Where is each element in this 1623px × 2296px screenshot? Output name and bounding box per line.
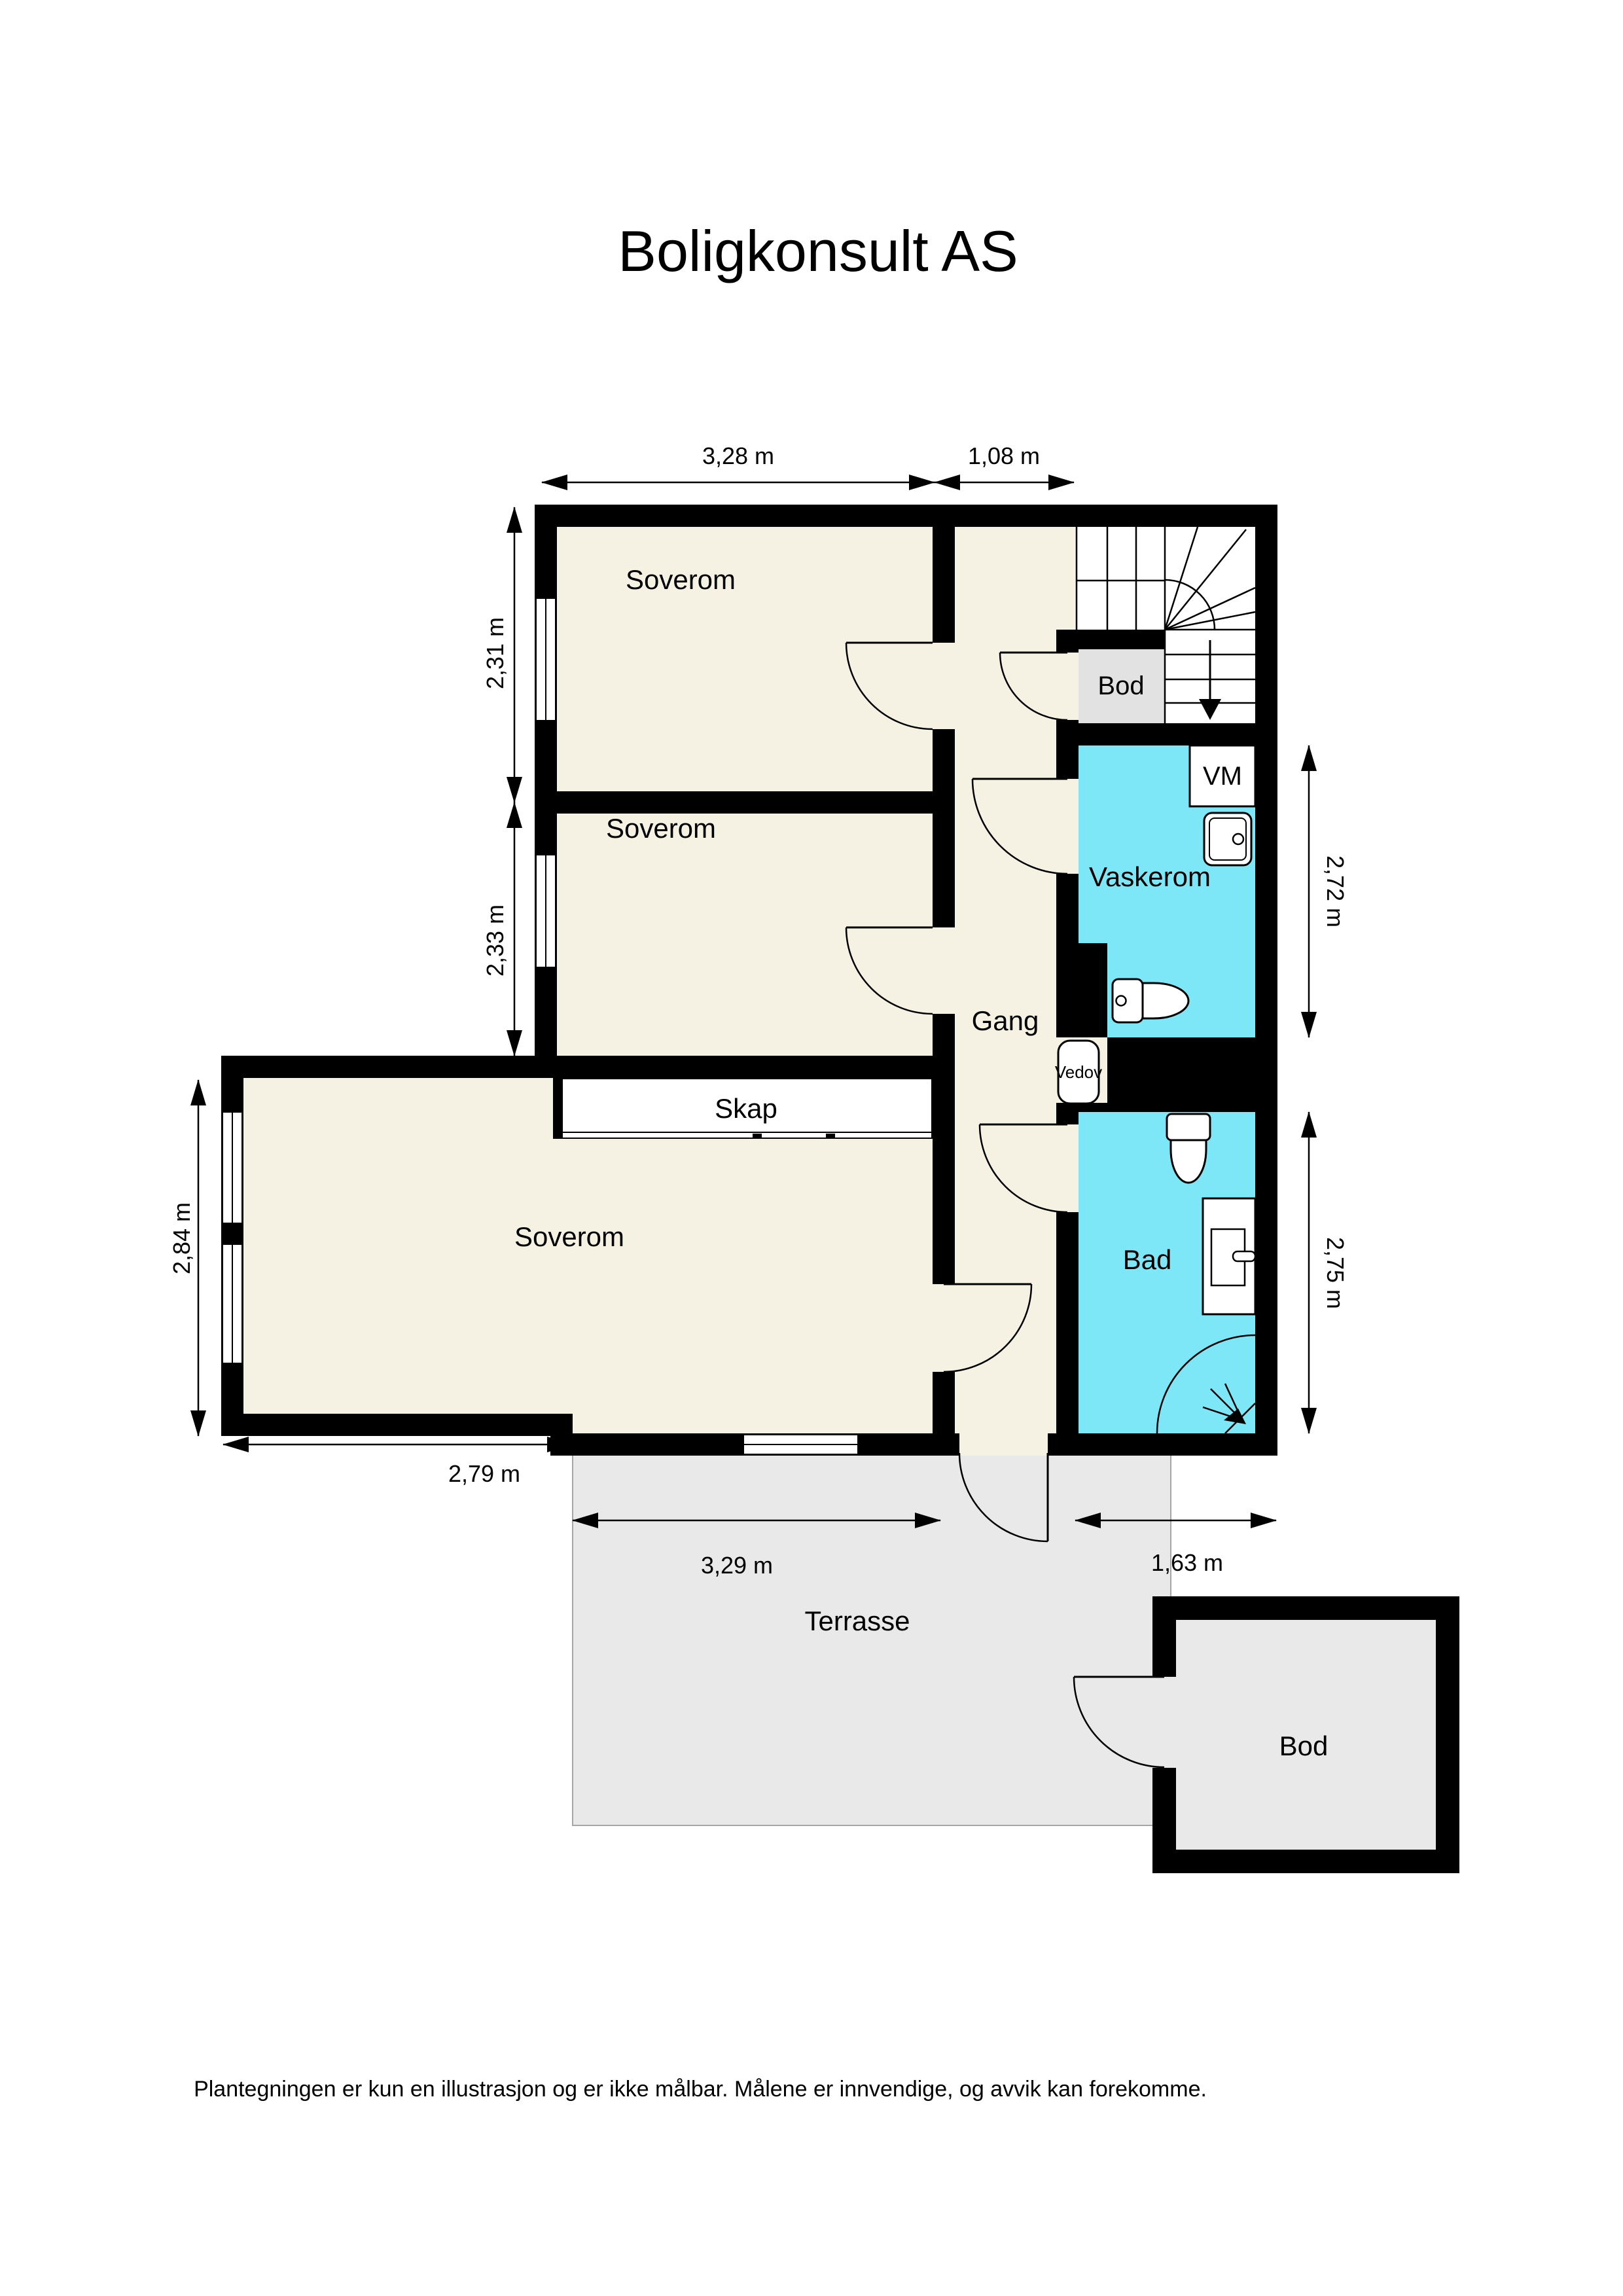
- dimension-label: 2,84 m: [170, 1202, 194, 1274]
- room-label-skap: Skap: [715, 1095, 777, 1122]
- fixtures: [562, 745, 1255, 1433]
- closet-front-line: [562, 1132, 933, 1139]
- dimension-label: 3,28 m: [702, 444, 774, 468]
- door-soverom-top: [846, 643, 933, 729]
- door-bad: [980, 1124, 1067, 1212]
- dimension-label: 2,72 m: [1323, 855, 1347, 927]
- shower-icon: [1157, 1335, 1255, 1433]
- room-label-vaskerom: Vaskerom: [1089, 863, 1211, 891]
- stairs-down-arrow-icon: [1199, 699, 1221, 720]
- dimension-label: 1,08 m: [968, 444, 1040, 468]
- fixture-label-washing-machine: VM: [1203, 763, 1242, 789]
- vanity-icon: [1203, 1198, 1255, 1314]
- dimension-label: 2,79 m: [448, 1462, 520, 1486]
- dimension-label: 2,75 m: [1323, 1237, 1347, 1309]
- door-bod-inner: [1000, 653, 1067, 720]
- disclaimer-text: Plantegningen er kun en illustrasjon og …: [194, 2078, 1207, 2100]
- door-soverom-mid: [846, 927, 933, 1014]
- room-label-bad: Bad: [1123, 1246, 1172, 1274]
- room-label-bod-outer: Bod: [1279, 1732, 1329, 1760]
- room-label-soverom-top: Soverom: [626, 566, 736, 594]
- sink-icon: [1204, 813, 1251, 865]
- room-label-gang: Gang: [972, 1007, 1039, 1035]
- room-label-soverom-mid: Soverom: [606, 815, 716, 842]
- dimension-label: 1,63 m: [1151, 1551, 1223, 1575]
- toilet-icon: [1113, 979, 1188, 1022]
- door-vaskerom: [972, 779, 1067, 874]
- dimension-label: 3,29 m: [701, 1554, 773, 1577]
- room-label-soverom-bottom: Soverom: [514, 1223, 624, 1251]
- fixture-label-wood-stove: Vedov: [1055, 1064, 1102, 1081]
- door-soverom-bottom: [944, 1284, 1031, 1372]
- door-bod-outer: [1074, 1677, 1164, 1767]
- plan-annotations: [0, 0, 1623, 2296]
- room-label-bod-inner: Bod: [1097, 673, 1144, 699]
- dimension-label: 2,31 m: [484, 617, 507, 689]
- door-terrasse: [959, 1453, 1048, 1541]
- dimension-label: 2,33 m: [484, 905, 507, 977]
- toilet-icon: [1167, 1114, 1210, 1183]
- room-label-terrasse: Terrasse: [804, 1607, 910, 1635]
- floor-plan: Soverom Soverom Soverom Gang Vaskerom Ba…: [0, 0, 1623, 2296]
- door-swings: [846, 643, 1164, 1767]
